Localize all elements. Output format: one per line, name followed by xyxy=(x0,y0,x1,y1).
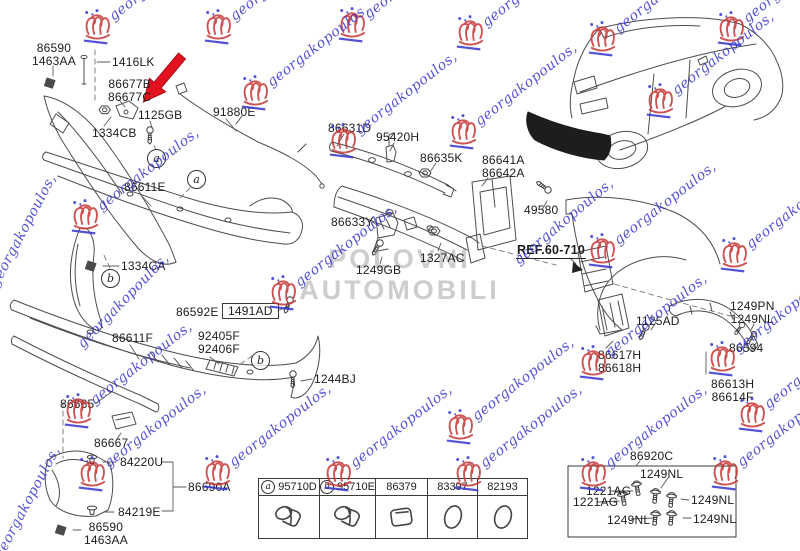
table-column-83397: 83397 xyxy=(427,478,478,539)
watermark-line: AUTOMOBILI xyxy=(292,275,507,306)
upper-bumper-cover xyxy=(43,152,303,244)
plug-oval-icon xyxy=(477,495,528,539)
table-header-95710E: b95710E xyxy=(319,478,376,496)
sensor-icon xyxy=(319,495,376,539)
plug-oval-icon xyxy=(427,495,478,539)
quarter-panel-sketch xyxy=(44,96,176,264)
callout-a: a xyxy=(261,480,275,494)
side-bracket xyxy=(70,228,101,330)
table-header-82193: 82193 xyxy=(477,478,528,496)
small-bracket-86677 xyxy=(116,101,138,119)
plug-square-icon xyxy=(375,495,428,539)
part-number-text: 83397 xyxy=(437,481,468,493)
table-column-86379: 86379 xyxy=(375,478,428,539)
highlight-arrow-icon xyxy=(135,49,190,108)
table-column-82193: 82193 xyxy=(477,478,528,539)
table-header-95710D: a95710D xyxy=(258,478,320,496)
side-mounting-bracket xyxy=(598,294,629,336)
watermark-line: POLOVNI xyxy=(292,244,507,275)
reseller-watermark: POLOVNI AUTOMOBILI xyxy=(292,244,507,306)
callout-b: b xyxy=(320,480,334,494)
part-number-text: 95710E xyxy=(337,481,375,493)
table-header-83397: 83397 xyxy=(427,478,478,496)
energy-absorber xyxy=(472,176,516,250)
table-column-95710D: a95710D xyxy=(258,478,320,539)
wiring-harness xyxy=(176,83,324,188)
fender-reference-sketch xyxy=(566,197,720,334)
lower-garnish xyxy=(11,336,158,412)
sensor-icon xyxy=(258,495,320,539)
hardware-box-outline xyxy=(568,466,736,537)
bumper-rail xyxy=(330,142,456,197)
mud-guard xyxy=(45,451,113,516)
vehicle-sketch xyxy=(527,18,783,174)
parts-diagram-page: POLOVNI AUTOMOBILI 865901463AA1416LK8667… xyxy=(0,0,800,551)
parts-table: a95710Db95710E863798339782193 xyxy=(258,478,528,539)
part-number-text: 86379 xyxy=(386,481,417,493)
fasteners xyxy=(44,78,757,535)
part-number-text: 95710D xyxy=(278,481,317,493)
table-header-86379: 86379 xyxy=(375,478,428,496)
lower-bumper-cover xyxy=(10,300,320,398)
pin-1416LK xyxy=(81,55,87,84)
table-column-95710E: b95710E xyxy=(319,478,376,539)
tow-hook-cover xyxy=(112,412,136,429)
part-number-text: 82193 xyxy=(487,481,518,493)
antenna-bracket-95420H xyxy=(386,133,396,162)
